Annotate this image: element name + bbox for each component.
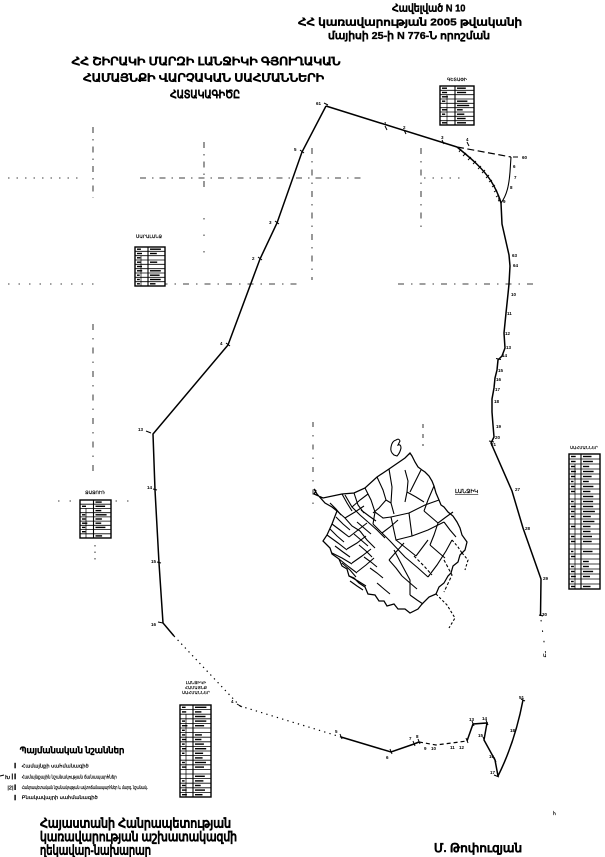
svg-text:17: 17 (495, 387, 501, 392)
svg-text:հ: հ (553, 810, 556, 816)
svg-text:մայիսի 25-ի N 776-Ն որոշման: մայիսի 25-ի N 776-Ն որոշման (328, 30, 490, 42)
svg-text:ե: ե (498, 197, 501, 202)
svg-text:ԼԱՆՋԻԿ: ԼԱՆՋԻԿ (455, 488, 478, 495)
svg-text:ՍԱՀՄԱՆՆԵՐ: ՍԱՀՄԱՆՆԵՐ (570, 445, 598, 450)
svg-text:14: 14 (147, 485, 153, 490)
svg-text:Համայնքի սահմանագիծ: Համայնքի սահմանագիծ (22, 763, 89, 770)
svg-text:15: 15 (498, 368, 504, 373)
svg-text:ՀԱՄԱՅՆՔԻ ՎԱՐՉԱԿԱՆ ՍԱՀՄԱՆՆԵՐԻ: ՀԱՄԱՅՆՔԻ ՎԱՐՉԱԿԱՆ ՍԱՀՄԱՆՆԵՐԻ (83, 73, 324, 85)
svg-text:63: 63 (512, 253, 518, 258)
svg-text:18: 18 (494, 399, 500, 404)
svg-text:20: 20 (495, 435, 501, 440)
svg-text:10: 10 (431, 746, 437, 751)
svg-text:Համայնքային նշանակության ճանապ: Համայնքային նշանակության ճանապարհներ (22, 774, 117, 781)
svg-text:16: 16 (151, 622, 157, 627)
svg-text:10: 10 (511, 292, 517, 297)
svg-text:Հանրապետական նշանակության ավտո: Հանրապետական նշանակության ավտոճանապարհնե… (22, 784, 148, 791)
svg-text:28: 28 (525, 526, 531, 531)
svg-text:ԳԵՏԱՓԻ: ԳԵՏԱՓԻ (447, 77, 468, 82)
svg-text:ՀՀ ՇԻՐԱԿԻ ՄԱՐԶԻ ԼԱՆՋԻԿԻ ԳՅՈՒՂԱ: ՀՀ ՇԻՐԱԿԻ ՄԱՐԶԻ ԼԱՆՋԻԿԻ ԳՅՈՒՂԱԿԱՆ (72, 56, 341, 68)
svg-text:64: 64 (513, 263, 519, 268)
svg-text:27: 27 (515, 487, 521, 492)
svg-text:12: 12 (505, 331, 511, 336)
svg-text:13: 13 (138, 427, 144, 432)
svg-text:Հավելված N 10: Հավելված N 10 (392, 3, 466, 15)
svg-text:Բնակավայրի սահմանագիծ: Բնակավայրի սահմանագիծ (22, 794, 98, 801)
svg-text:16: 16 (489, 754, 495, 759)
svg-text:30: 30 (542, 612, 548, 617)
svg-text:19: 19 (496, 424, 502, 429)
svg-text:ՀԱՏԱԿԱԳԻԾԸ: ՀԱՏԱԿԱԳԻԾԸ (170, 89, 240, 101)
svg-text:14: 14 (502, 353, 508, 358)
svg-text:17: 17 (490, 770, 496, 775)
svg-text:Ա: Ա (543, 653, 547, 658)
svg-text:29: 29 (543, 576, 549, 581)
svg-text:13: 13 (469, 717, 475, 722)
svg-text:ՍԱՐԱԼԱՆՋ: ՍԱՐԱԼԱՆՋ (136, 233, 162, 239)
svg-text:12: 12 (459, 745, 465, 750)
svg-text:ՀՀ կառավարության 2005 թվականի: ՀՀ կառավարության 2005 թվականի (298, 17, 522, 29)
svg-text:18: 18 (510, 728, 516, 733)
svg-text:ղեկավար-նախարար: ղեկավար-նախարար (40, 843, 151, 857)
svg-text:61: 61 (316, 101, 322, 106)
svg-text:ՋԱՋՈՒՌ: ՋԱՋՈՒՌ (85, 490, 105, 495)
svg-text:13: 13 (506, 345, 512, 350)
svg-text:11: 11 (507, 311, 512, 316)
svg-text:16: 16 (496, 377, 502, 382)
svg-text:|2|: |2| (7, 786, 14, 792)
svg-text:14: 14 (482, 716, 488, 721)
svg-text:15: 15 (478, 733, 484, 738)
svg-text:Պայմանական նշաններ: Պայմանական նշաններ (20, 745, 125, 756)
svg-text:11: 11 (450, 745, 455, 750)
svg-text:Մ. Թոփուզյան: Մ. Թոփուզյան (434, 841, 522, 855)
svg-text:15: 15 (151, 559, 157, 564)
svg-text:51: 51 (519, 695, 525, 700)
svg-text:60: 60 (522, 155, 528, 160)
svg-text:ՍԱՀՄԱՆՆԵՐ: ՍԱՀՄԱՆՆԵՐ (182, 690, 210, 695)
svg-text:21: 21 (491, 442, 497, 447)
